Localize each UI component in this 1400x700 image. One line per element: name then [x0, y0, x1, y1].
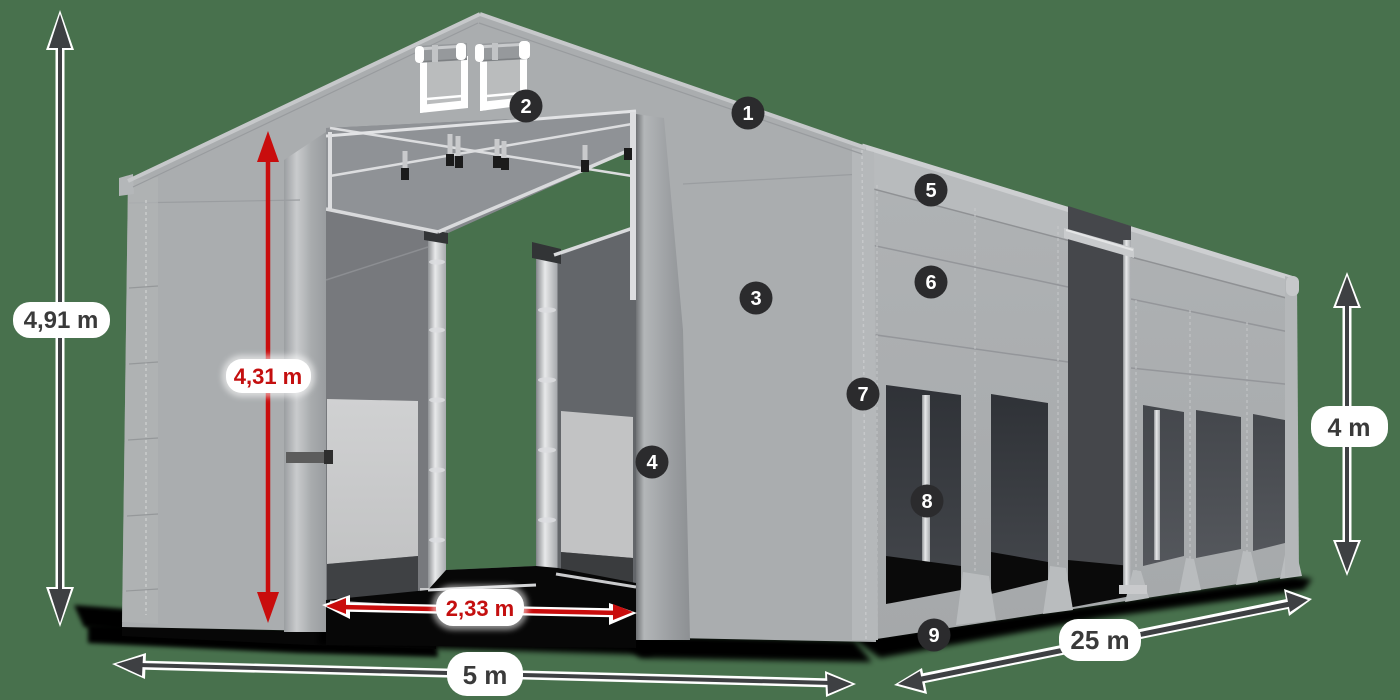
- svg-text:4: 4: [646, 452, 658, 474]
- svg-text:5 m: 5 m: [463, 660, 508, 690]
- svg-text:4,31 m: 4,31 m: [234, 364, 303, 389]
- svg-text:5: 5: [925, 180, 936, 202]
- svg-text:7: 7: [857, 384, 868, 406]
- svg-text:3: 3: [750, 288, 761, 310]
- svg-text:9: 9: [928, 625, 939, 647]
- svg-text:1: 1: [742, 103, 753, 125]
- svg-text:4,91 m: 4,91 m: [24, 307, 99, 334]
- svg-text:8: 8: [921, 491, 932, 513]
- svg-text:2,33 m: 2,33 m: [446, 596, 515, 621]
- svg-text:25 m: 25 m: [1070, 625, 1129, 655]
- svg-text:2: 2: [520, 96, 531, 118]
- svg-text:4 m: 4 m: [1327, 414, 1370, 442]
- svg-text:6: 6: [925, 272, 936, 294]
